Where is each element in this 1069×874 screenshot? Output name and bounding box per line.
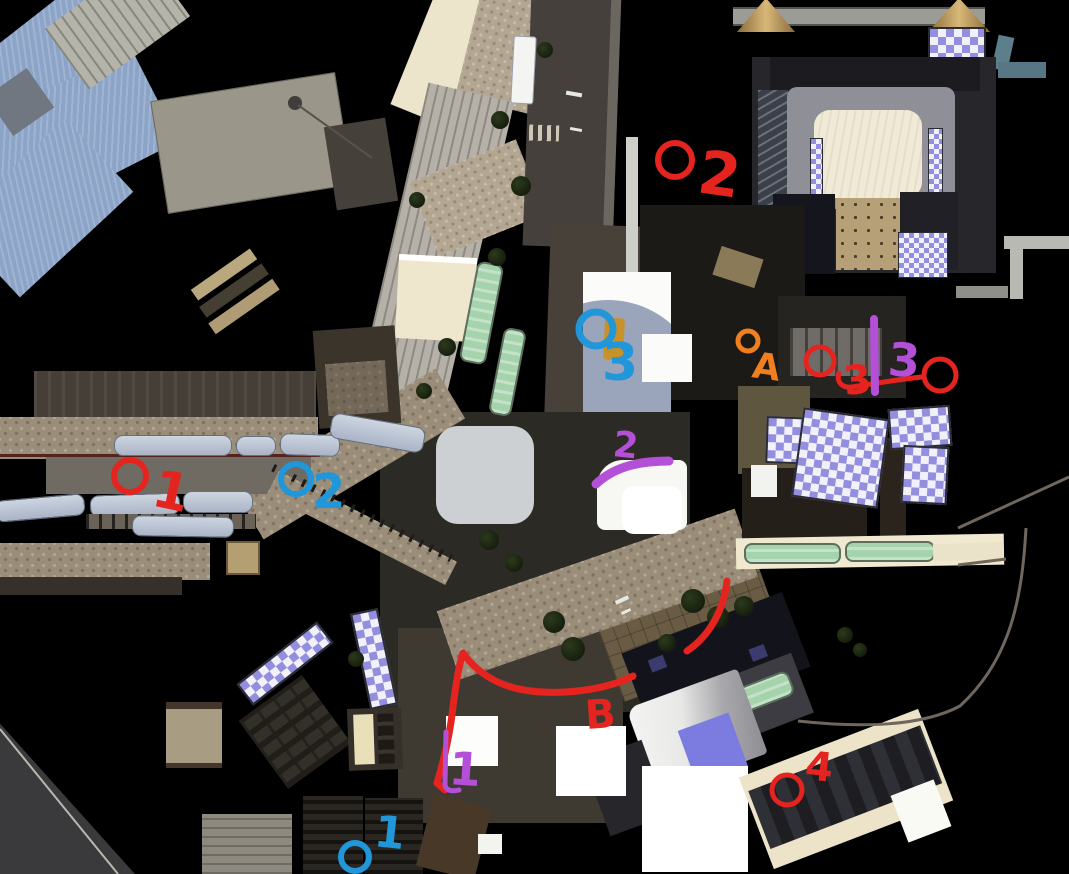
crate-stack xyxy=(226,541,260,575)
brown-building xyxy=(313,325,402,428)
window-band xyxy=(790,328,882,376)
tan-yard xyxy=(836,198,906,270)
inner-court xyxy=(325,360,388,416)
dark-bays xyxy=(377,713,395,764)
white-patch xyxy=(446,716,498,766)
white-roof xyxy=(556,726,626,796)
vent-building xyxy=(365,798,423,874)
white-annex xyxy=(642,334,692,382)
checker-roof xyxy=(901,445,950,505)
tree xyxy=(505,554,523,572)
tree xyxy=(853,643,867,657)
white-patch xyxy=(478,834,502,854)
platform-edge xyxy=(0,577,182,595)
rail-cobble xyxy=(0,543,210,580)
cream-core xyxy=(353,714,375,765)
tree xyxy=(681,589,705,613)
crosswalk xyxy=(529,124,560,141)
checker-roof xyxy=(898,232,948,278)
tan-building xyxy=(150,72,353,214)
white-shed xyxy=(751,465,777,497)
excavator xyxy=(603,318,625,361)
arena-top-band xyxy=(770,57,980,91)
green-tram xyxy=(744,543,841,564)
teal-duct xyxy=(998,62,1046,78)
tree xyxy=(348,651,364,667)
gray-ledge xyxy=(956,286,1008,298)
tree xyxy=(561,637,585,661)
warehouse-roof xyxy=(202,814,292,874)
tree xyxy=(837,627,853,643)
platform-roof xyxy=(34,371,316,418)
gray-ledge xyxy=(1010,247,1023,299)
tree xyxy=(438,338,456,356)
road-wedge xyxy=(0,695,135,874)
white-roof xyxy=(642,766,748,872)
arena-floor xyxy=(814,110,922,198)
tree xyxy=(537,42,553,58)
skylight xyxy=(648,655,668,673)
truck xyxy=(510,35,537,104)
checker-strip xyxy=(928,128,943,200)
checker-roof xyxy=(791,407,890,508)
checker-roof xyxy=(888,405,953,450)
tree xyxy=(416,383,432,399)
red-circle-right xyxy=(924,359,956,391)
green-tram xyxy=(845,541,935,562)
checker-strip xyxy=(810,138,823,200)
platform-extension xyxy=(933,542,1004,561)
tree xyxy=(491,111,509,129)
vent-building xyxy=(303,796,363,874)
crane-base xyxy=(288,96,302,110)
fence-line xyxy=(958,477,1069,528)
skylight xyxy=(748,644,768,662)
tree xyxy=(409,192,425,208)
tree xyxy=(707,606,729,628)
train-car xyxy=(0,493,86,523)
tree xyxy=(734,596,754,616)
tree xyxy=(543,611,565,633)
green-tram xyxy=(488,327,527,418)
red-circle-2 xyxy=(658,143,692,177)
light-patch xyxy=(436,426,534,524)
red-label-2: 2 xyxy=(694,138,745,213)
train-car xyxy=(114,435,232,456)
tan-house xyxy=(166,702,222,768)
tree xyxy=(658,634,676,652)
tan-building-dark-end xyxy=(324,118,398,211)
overhead-map: 1234B321A321 xyxy=(0,0,1069,874)
white-curved-roof xyxy=(622,486,682,534)
train-car xyxy=(236,436,276,456)
cream-core-building xyxy=(347,707,403,771)
train-car xyxy=(183,491,253,513)
train-car xyxy=(280,433,341,457)
tree xyxy=(479,530,499,550)
tree xyxy=(488,248,506,266)
train-car xyxy=(132,515,234,538)
tree xyxy=(511,176,531,196)
